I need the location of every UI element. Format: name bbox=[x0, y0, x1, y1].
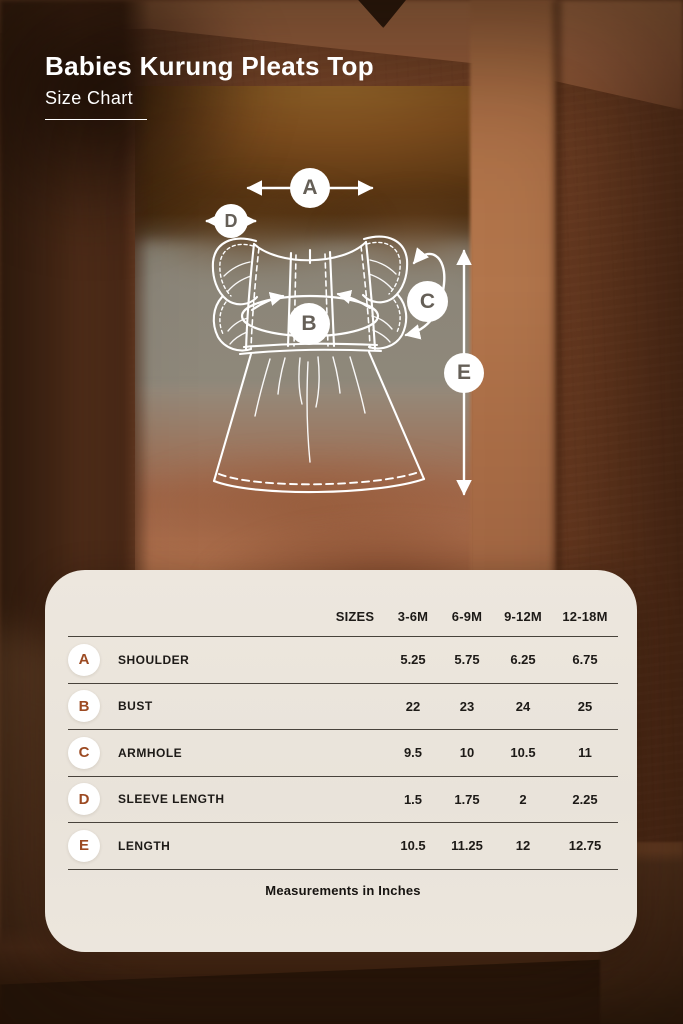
marker-C: C bbox=[407, 281, 448, 322]
table-row-sleeve-length: D SLEEVE LENGTH 1.5 1.75 2 2.25 bbox=[68, 776, 618, 823]
marker-B-label: B bbox=[301, 312, 316, 336]
size-chart-card: SIZES 3-6M 6-9M 9-12M 12-18M A SHOULDER … bbox=[45, 570, 637, 952]
page-title: Babies Kurung Pleats Top bbox=[45, 52, 374, 81]
value-cell: 11 bbox=[552, 745, 618, 760]
marker-D: D bbox=[214, 204, 248, 238]
marker-D-label: D bbox=[225, 211, 238, 232]
value-cell: 24 bbox=[494, 699, 552, 714]
row-key-cell: A bbox=[68, 644, 118, 676]
table-row-shoulder: A SHOULDER 5.25 5.75 6.25 6.75 bbox=[68, 636, 618, 683]
marker-A-label: A bbox=[302, 176, 317, 200]
row-key-badge: E bbox=[68, 830, 100, 862]
value-cell: 10.5 bbox=[386, 838, 440, 853]
value-cell: 5.75 bbox=[440, 652, 494, 667]
value-cell: 5.25 bbox=[386, 652, 440, 667]
marker-B: B bbox=[288, 303, 330, 345]
value-cell: 1.5 bbox=[386, 792, 440, 807]
value-cell: 23 bbox=[440, 699, 494, 714]
value-cell: 12.75 bbox=[552, 838, 618, 853]
size-header-12-18m: 12-18M bbox=[552, 609, 618, 624]
size-chart-page: A B C D E Babies Kurung Pleats Top Size … bbox=[0, 0, 683, 1024]
value-cell: 2.25 bbox=[552, 792, 618, 807]
value-cell: 25 bbox=[552, 699, 618, 714]
row-name: BUST bbox=[118, 699, 324, 713]
table-row-bust: B BUST 22 23 24 25 bbox=[68, 683, 618, 730]
value-cell: 9.5 bbox=[386, 745, 440, 760]
value-cell: 12 bbox=[494, 838, 552, 853]
value-cell: 2 bbox=[494, 792, 552, 807]
marker-E-label: E bbox=[457, 361, 471, 385]
row-name: ARMHOLE bbox=[118, 746, 324, 760]
title-block: Babies Kurung Pleats Top Size Chart bbox=[45, 52, 374, 120]
value-cell: 22 bbox=[386, 699, 440, 714]
table-row-length: E LENGTH 10.5 11.25 12 12.75 bbox=[68, 822, 618, 869]
row-key-badge: B bbox=[68, 690, 100, 722]
value-cell: 6.25 bbox=[494, 652, 552, 667]
row-name: SHOULDER bbox=[118, 653, 324, 667]
value-cell: 6.75 bbox=[552, 652, 618, 667]
row-name: SLEEVE LENGTH bbox=[118, 792, 324, 806]
row-key-cell: B bbox=[68, 690, 118, 722]
row-key-cell: C bbox=[68, 737, 118, 769]
units-footnote: Measurements in Inches bbox=[68, 883, 618, 898]
row-key-badge: A bbox=[68, 644, 100, 676]
size-header-3-6m: 3-6M bbox=[386, 609, 440, 624]
sizes-column-header: SIZES bbox=[324, 609, 386, 624]
marker-C-label: C bbox=[420, 290, 435, 314]
table-row-armhole: C ARMHOLE 9.5 10 10.5 11 bbox=[68, 729, 618, 776]
size-header-6-9m: 6-9M bbox=[440, 609, 494, 624]
row-key-badge: D bbox=[68, 783, 100, 815]
row-key-badge: C bbox=[68, 737, 100, 769]
value-cell: 1.75 bbox=[440, 792, 494, 807]
page-subtitle: Size Chart bbox=[45, 88, 147, 120]
row-key-cell: D bbox=[68, 783, 118, 815]
value-cell: 10 bbox=[440, 745, 494, 760]
marker-A: A bbox=[290, 168, 330, 208]
marker-E: E bbox=[444, 353, 484, 393]
value-cell: 11.25 bbox=[440, 838, 494, 853]
size-header-9-12m: 9-12M bbox=[494, 609, 552, 624]
row-name: LENGTH bbox=[118, 839, 324, 853]
value-cell: 10.5 bbox=[494, 745, 552, 760]
table-header-row: SIZES 3-6M 6-9M 9-12M 12-18M bbox=[68, 596, 618, 636]
row-key-cell: E bbox=[68, 830, 118, 862]
table-body: A SHOULDER 5.25 5.75 6.25 6.75 B BUST 22… bbox=[68, 636, 618, 870]
